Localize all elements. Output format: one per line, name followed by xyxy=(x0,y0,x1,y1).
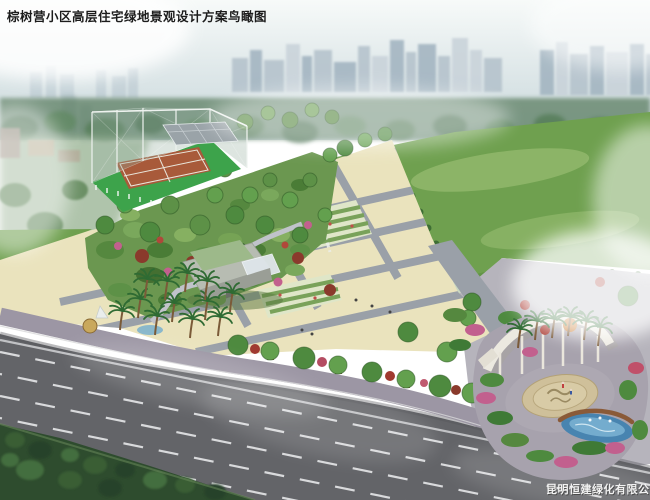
straw-gazebo xyxy=(83,319,97,333)
title-text: 棕树营小区高层住宅绿地景观设计方案鸟瞰图 xyxy=(6,9,267,24)
rendering-canvas: 棕树营小区高层住宅绿地景观设计方案鸟瞰图 昆明恒建绿化有限公司 昆明恒建绿化有限… xyxy=(0,0,650,500)
watermark-text: 昆明恒建绿化有限公司 xyxy=(546,482,650,496)
landscape-rendering: 棕树营小区高层住宅绿地景观设计方案鸟瞰图 昆明恒建绿化有限公司 昆明恒建绿化有限… xyxy=(0,0,650,500)
garden-pond xyxy=(137,325,163,335)
watermark: 昆明恒建绿化有限公司 昆明恒建绿化有限公司 xyxy=(546,482,650,497)
